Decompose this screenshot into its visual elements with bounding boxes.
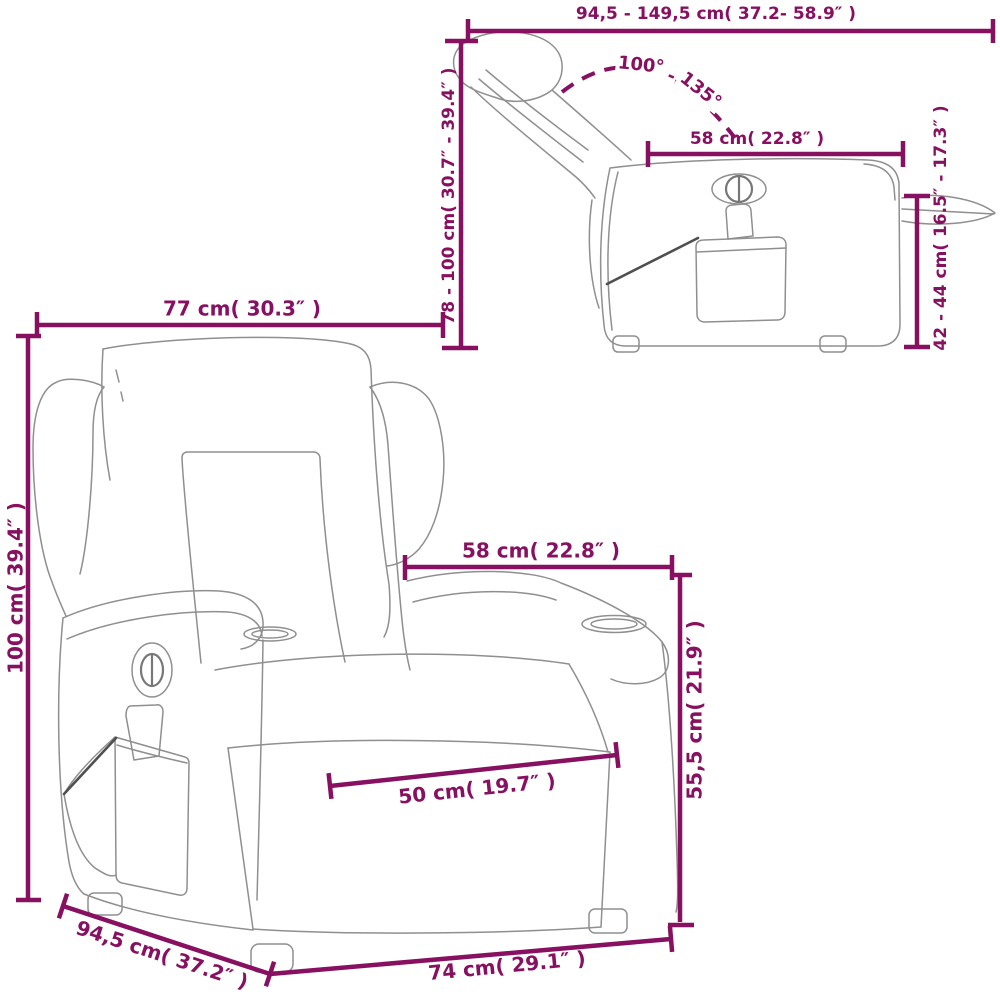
side-body-corner-seam bbox=[864, 164, 895, 200]
front-backrest-left-edge bbox=[102, 349, 110, 480]
side-width-label: 94,5 - 149,5 cm( 37.2- 58.9″ ) bbox=[576, 6, 856, 24]
front-back-width-label: 77 cm( 30.3″ ) bbox=[163, 299, 321, 320]
side-backrest-seam bbox=[479, 79, 583, 162]
front-right-arm-side bbox=[662, 642, 678, 912]
front-base-left-edge bbox=[228, 748, 253, 929]
front-height-label: 100 cm( 39.4″ ) bbox=[6, 502, 27, 674]
side-backrest-bottom bbox=[589, 200, 599, 308]
front-left-arm-right-edge bbox=[257, 640, 263, 900]
side-backrest-under-edge bbox=[471, 87, 595, 198]
front-pocket-gusset bbox=[64, 737, 116, 876]
side-pocket-hem bbox=[697, 248, 786, 252]
side-body-outline bbox=[601, 159, 900, 346]
front-foot-left bbox=[88, 893, 122, 915]
side-backrest-seam2 bbox=[486, 70, 588, 150]
dimension-diagram: 94,5 - 149,5 cm( 37.2- 58.9″ ) 78 - 100 … bbox=[0, 0, 1000, 1000]
front-remote-holder bbox=[126, 705, 163, 760]
diagram-canvas bbox=[0, 0, 1000, 1000]
side-seat-height-label: 42 - 44 cm( 16.5″ - 17.3″ ) bbox=[933, 105, 951, 350]
front-seat-front-seam bbox=[228, 740, 610, 752]
side-armrest-length-label: 58 cm( 22.8″ ) bbox=[690, 131, 824, 149]
dim-side-seat-height-line bbox=[904, 196, 930, 347]
side-view-drawing bbox=[454, 32, 995, 352]
side-pocket-cord bbox=[607, 238, 698, 284]
side-backrest-right-edge bbox=[552, 90, 631, 160]
front-right-cupholder-inner bbox=[591, 619, 637, 629]
front-armrest-height-label: 55,5 cm( 21.9″ ) bbox=[685, 620, 706, 800]
front-left-arm-seam bbox=[67, 612, 262, 639]
front-left-cupholder-inner bbox=[252, 630, 288, 638]
side-body-front-seam bbox=[608, 172, 618, 330]
front-base-bottom-edge bbox=[253, 927, 601, 933]
front-right-wing-inner bbox=[370, 387, 410, 670]
front-backrest-wrinkle bbox=[116, 370, 123, 401]
front-left-wing-inner bbox=[80, 387, 104, 574]
side-height-label: 78 - 100 cm( 30.7″ - 39.4″ ) bbox=[441, 67, 459, 324]
front-foot-right bbox=[589, 909, 627, 933]
front-pocket-cord bbox=[64, 738, 116, 794]
front-backrest-outline bbox=[103, 337, 390, 637]
front-seat-width-label: 58 cm( 22.8″ ) bbox=[462, 541, 620, 562]
front-right-arm-seam bbox=[413, 592, 556, 602]
front-seat-right-seam bbox=[569, 664, 608, 752]
front-view-drawing bbox=[33, 337, 678, 972]
front-left-arm-roll bbox=[63, 591, 263, 649]
dimension-lines bbox=[16, 19, 993, 986]
side-remote-holder bbox=[726, 204, 753, 239]
front-left-arm-left-edge bbox=[59, 618, 84, 894]
front-back-cushion-seam bbox=[182, 452, 345, 663]
side-foot-right bbox=[820, 336, 846, 352]
front-seat-top-seam bbox=[215, 654, 569, 670]
front-base-right-edge bbox=[601, 752, 610, 927]
